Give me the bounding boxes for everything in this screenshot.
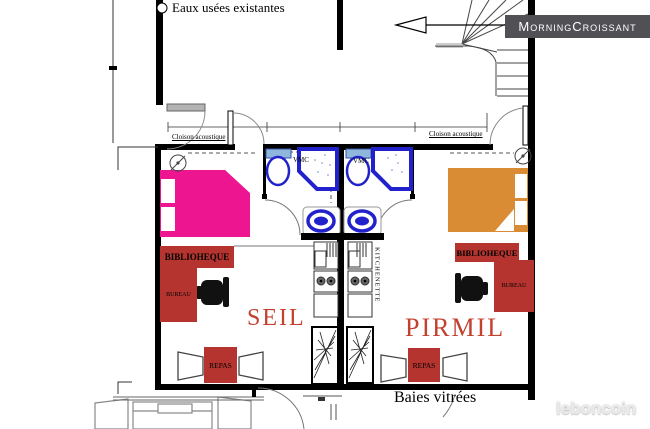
bureau-seil-label: BUREAU: [166, 292, 191, 298]
baies-vitrees-label: Baies vitrées: [394, 390, 476, 406]
wall-center-partition: [337, 148, 344, 384]
toilet-tank: [266, 149, 291, 158]
wall-top-middle-vertical: [337, 0, 343, 50]
cooktop: [348, 271, 372, 292]
bibliotheque-pirmil-label: BIBLIOHEQUE: [457, 248, 518, 258]
wall-top-bathrooms: [263, 144, 415, 150]
kitchenette-label: KITCHENETTE: [373, 247, 380, 309]
repas-seil: REPAS: [204, 347, 237, 383]
counter: [314, 294, 338, 317]
bibliotheque-seil: BIBLIOHEQUE: [160, 246, 234, 268]
floorplan-canvas: BIBLIOHEQUE BUREAU REPAS BIBLIOHEQUE BUR…: [0, 0, 650, 429]
bottom-center-marks: [303, 396, 342, 420]
repas-seil-label: REPAS: [209, 361, 232, 370]
wall-top-pirmil: [415, 144, 493, 150]
room-name-seil: SEIL: [247, 305, 306, 332]
entry-door-pirmil: [490, 106, 528, 145]
shower-icon: [299, 149, 337, 189]
sink-icon: [308, 211, 334, 231]
vmc-right-label: VMC: [353, 158, 369, 165]
entry-door-seil: [167, 104, 264, 149]
repas-pirmil: REPAS: [408, 348, 440, 382]
cloison-acoustique-right-label: Cloison acoustique: [429, 131, 482, 138]
wall-top-seil: [155, 144, 235, 150]
nightstand: [515, 174, 527, 198]
bed-seil: [160, 170, 250, 237]
room-name-pirmil: PIRMIL: [405, 313, 505, 343]
nightstand: [161, 207, 175, 231]
wall-top-left-vertical: [156, 0, 163, 105]
cooktop: [314, 271, 338, 292]
nightstand: [161, 179, 175, 203]
shower-icon: [373, 149, 411, 189]
bureau-seil: BUREAU: [160, 268, 197, 322]
bureau-pirmil-label: BUREAU: [502, 283, 527, 289]
nightstand: [515, 201, 527, 225]
balcony-door: [252, 388, 304, 429]
shower-speckles: [387, 154, 403, 173]
morningcroissant-watermark: MorningCroissant: [505, 15, 650, 38]
toilet-icon: [267, 157, 289, 185]
wall-right: [528, 0, 535, 400]
bureau-pirmil: BUREAU: [494, 260, 534, 312]
bed-pirmil: [448, 168, 528, 232]
balcony-furniture: [95, 397, 251, 429]
office-chair-pirmil: [455, 273, 488, 303]
kitchen-sink-unit: [314, 242, 338, 269]
cloison-acoustique-left-label: Cloison acoustique: [172, 134, 225, 141]
sink-icon: [349, 211, 375, 231]
kitchen-sink-unit: [348, 242, 372, 269]
leboncoin-watermark: leboncoin: [556, 399, 636, 419]
repas-pirmil-label: REPAS: [413, 361, 436, 370]
vmc-left-label: VMC: [293, 157, 309, 164]
boundary-lines: [109, 0, 158, 394]
office-chair-seil: [196, 277, 229, 307]
eaux-usees-label: Eaux usées existantes: [172, 1, 285, 14]
wall-bottom: [155, 384, 535, 390]
shower-speckles: [314, 154, 331, 176]
bibliotheque-seil-label: BIBLIOHEQUE: [165, 252, 230, 262]
ceiling-light-icon: [170, 155, 186, 171]
plan-linework: [0, 0, 650, 429]
counter: [348, 294, 372, 317]
